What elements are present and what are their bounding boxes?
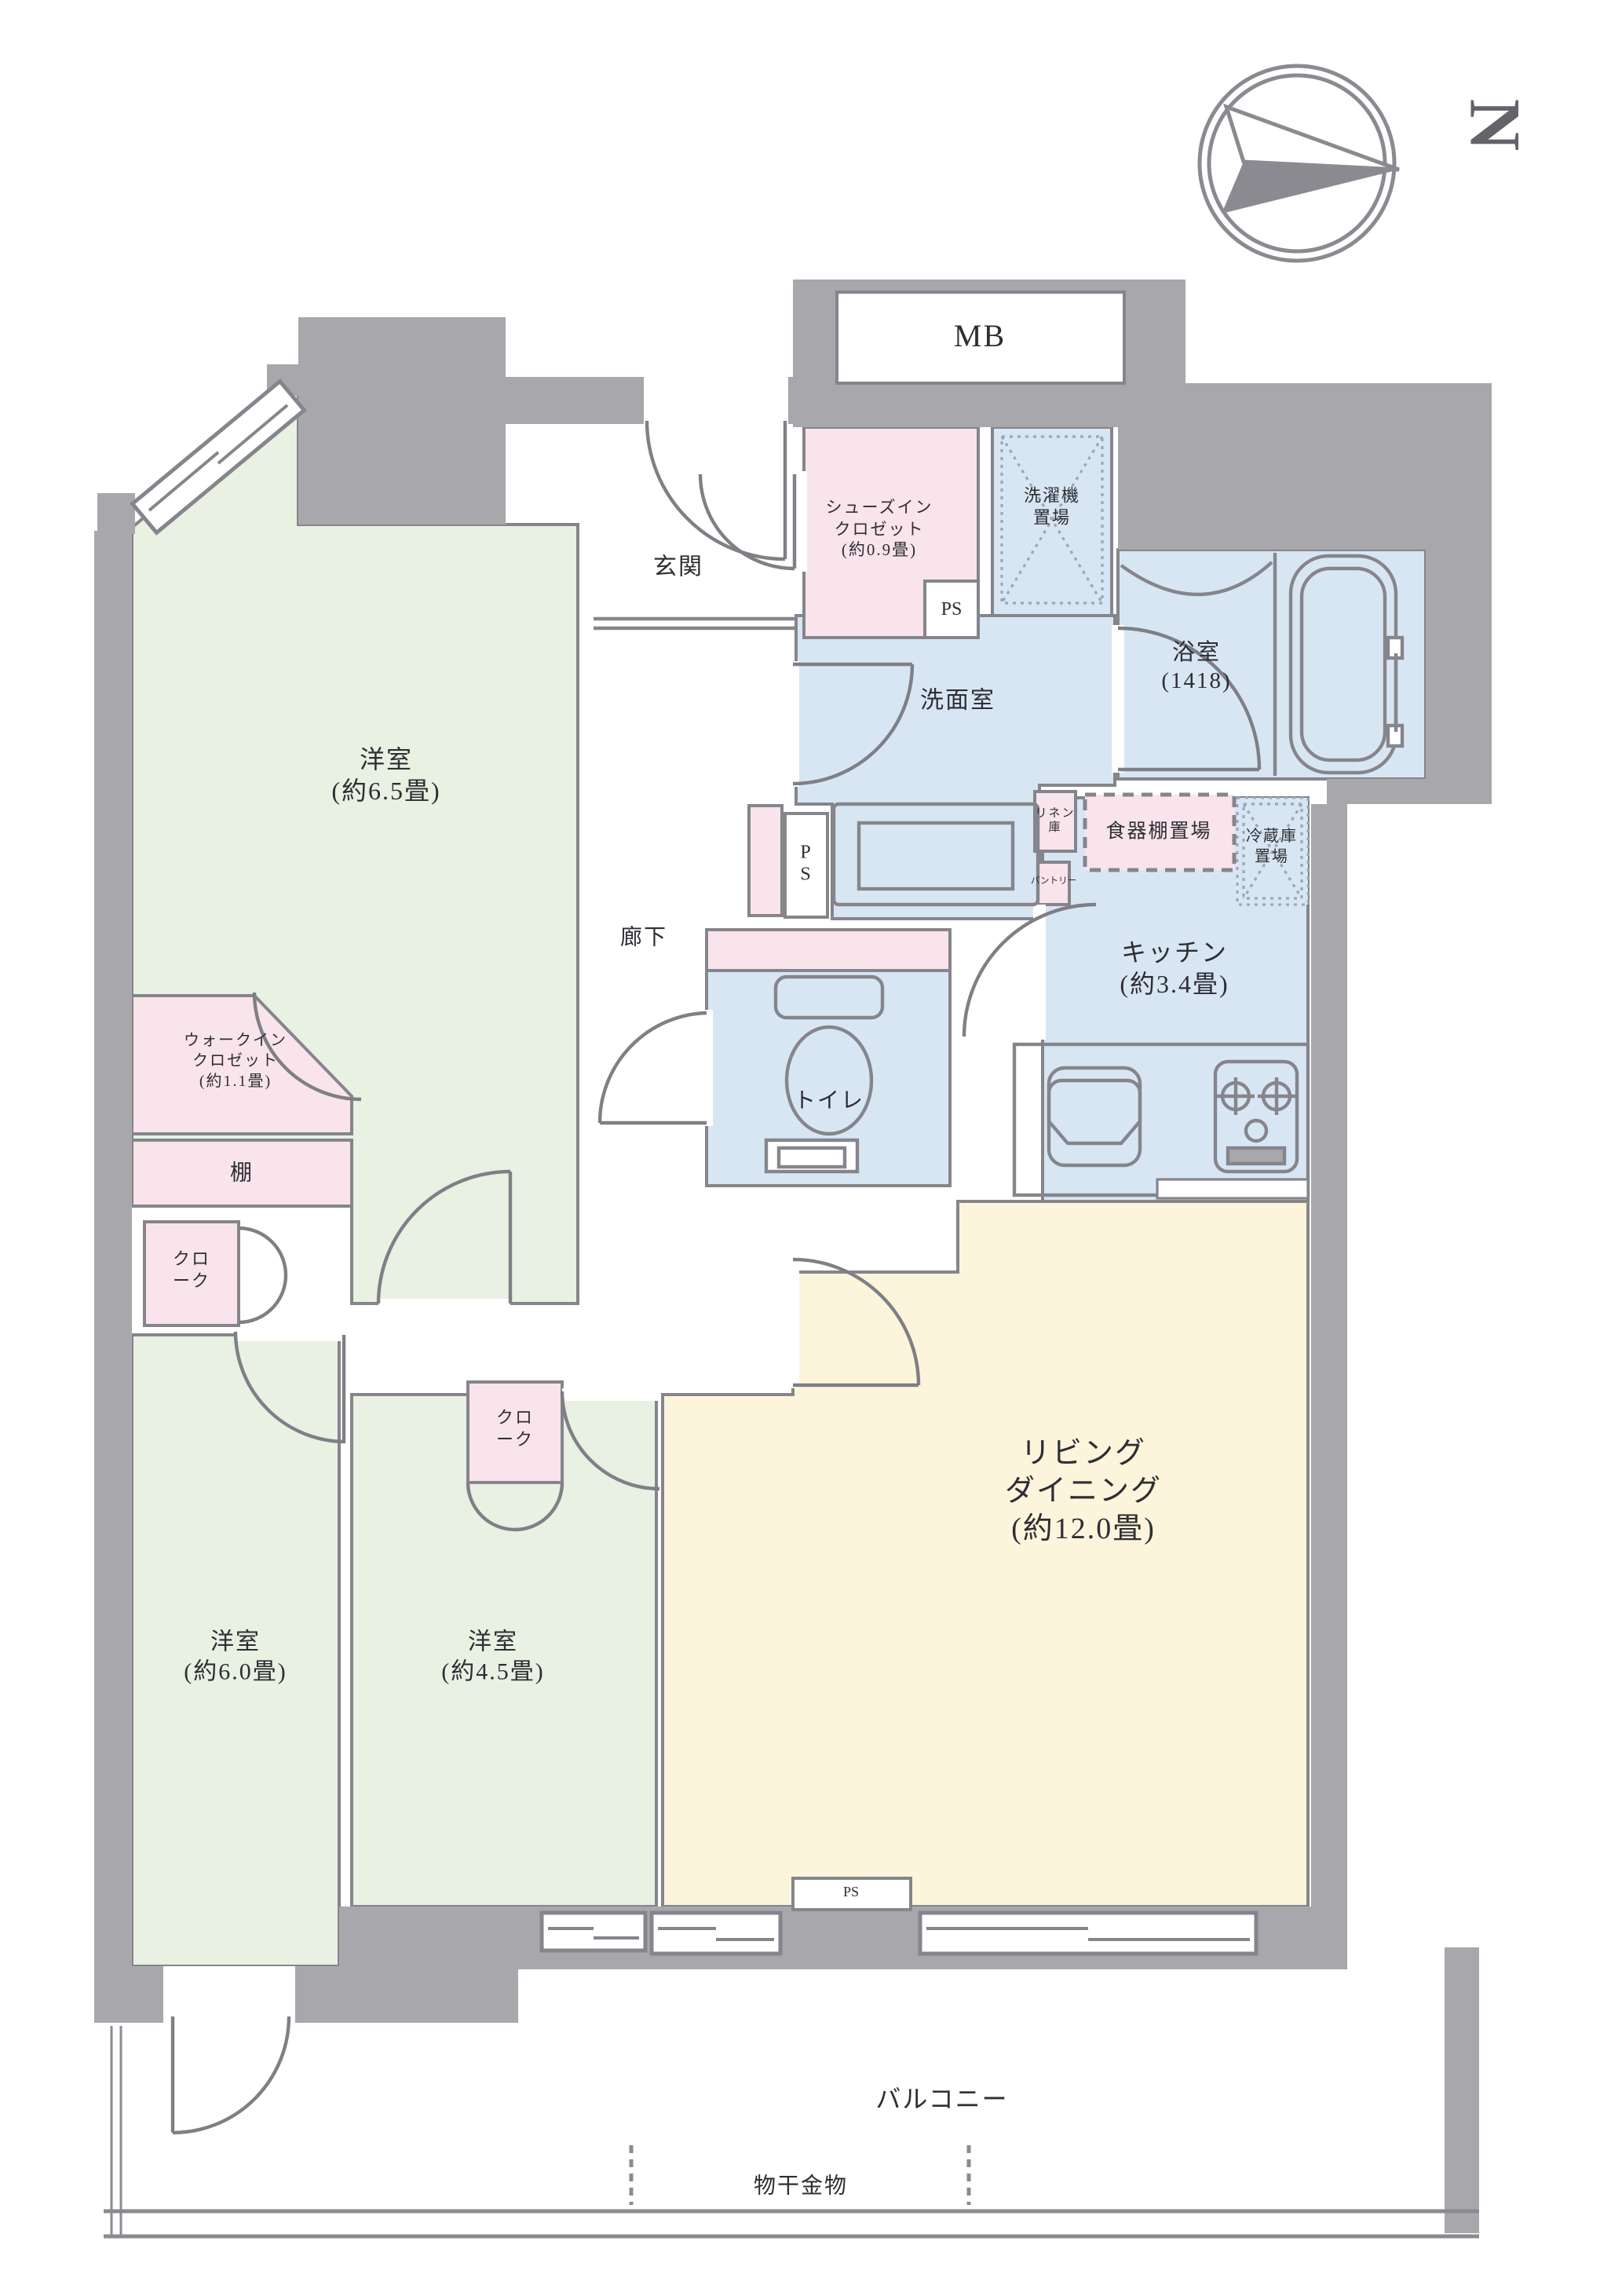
- label-dish-shelf: 食器棚置場: [1105, 820, 1211, 844]
- window-living-left: [652, 1913, 780, 1954]
- label-pantry: パントリー: [1031, 877, 1077, 888]
- floorplan-screenshot: N MB 玄関 シューズイン クロゼット (約0.9畳) PS 洗濯機 置場 洗…: [0, 0, 1622, 2296]
- door-cloak-left-a: [239, 1228, 286, 1275]
- label-toilet: トイレ: [794, 1089, 864, 1117]
- door-balcony: [173, 2016, 289, 2133]
- counter-slot: [1157, 1179, 1308, 1198]
- label-genkan: 玄関: [653, 554, 703, 583]
- label-living-dining: リビング ダイニング (約12.0畳): [1005, 1436, 1162, 1548]
- label-laundry: 物干金物: [754, 2174, 848, 2202]
- label-shelf: 棚: [230, 1161, 254, 1189]
- label-washer: 洗濯機 置場: [1024, 488, 1080, 531]
- room-living-dining: [663, 1201, 1308, 1907]
- door-toilet: [600, 1013, 707, 1123]
- grill: [1228, 1148, 1284, 1164]
- pink-strip-ps: [749, 806, 782, 916]
- label-cloak-mid: クロ ーク: [496, 1409, 534, 1453]
- label-mb: MB: [954, 318, 1006, 357]
- label-bedroom65: 洋室 (約6.5畳): [331, 746, 440, 809]
- label-shoes-closet: シューズイン クロゼット (約0.9畳): [826, 499, 933, 563]
- label-bedroom45: 洋室 (約4.5畳): [441, 1629, 545, 1688]
- label-washroom: 洗面室: [920, 687, 995, 717]
- toilet-shelf: [707, 930, 950, 971]
- door-shoes-closet: [700, 474, 795, 569]
- label-cloak-left: クロ ーク: [173, 1251, 210, 1294]
- label-ps-bottom: PS: [843, 1884, 859, 1902]
- label-ps-corridor: P S: [800, 842, 810, 885]
- label-fridge: 冷蔵庫 置場: [1246, 828, 1298, 868]
- balcony-rails: [104, 2026, 1479, 2236]
- wall-block-top: [298, 317, 506, 525]
- label-kitchen: キッチン (約3.4畳): [1120, 939, 1229, 1002]
- room-fills: [132, 386, 1426, 1966]
- wall-balcony-cap: [1445, 1947, 1479, 2233]
- wall-left: [94, 531, 132, 1966]
- door-entry: [647, 421, 785, 559]
- window-bedroom45: [542, 1913, 645, 1951]
- wall-bottom-left: [94, 1966, 518, 2023]
- floorplan-drawing: [0, 0, 1622, 2296]
- label-corridor: 廊下: [620, 926, 667, 953]
- north-label: N: [1450, 99, 1540, 152]
- label-wic: ウォークイン クロゼット (約1.1畳): [184, 1031, 287, 1092]
- window-living-right: [920, 1913, 1256, 1954]
- label-balcony: バルコニー: [875, 2086, 1008, 2117]
- label-ps-shoes: PS: [941, 598, 963, 621]
- wall-right: [1311, 804, 1347, 1913]
- compass-icon: [1200, 66, 1399, 261]
- label-linen: リネン 庫: [1036, 806, 1076, 834]
- label-bedroom60: 洋室 (約6.0畳): [184, 1629, 287, 1688]
- floorplan: N MB 玄関 シューズイン クロゼット (約0.9畳) PS 洗濯機 置場 洗…: [0, 0, 1622, 2296]
- label-bath: 浴室 (1418): [1161, 639, 1231, 696]
- door-cloak-left-b: [239, 1275, 286, 1322]
